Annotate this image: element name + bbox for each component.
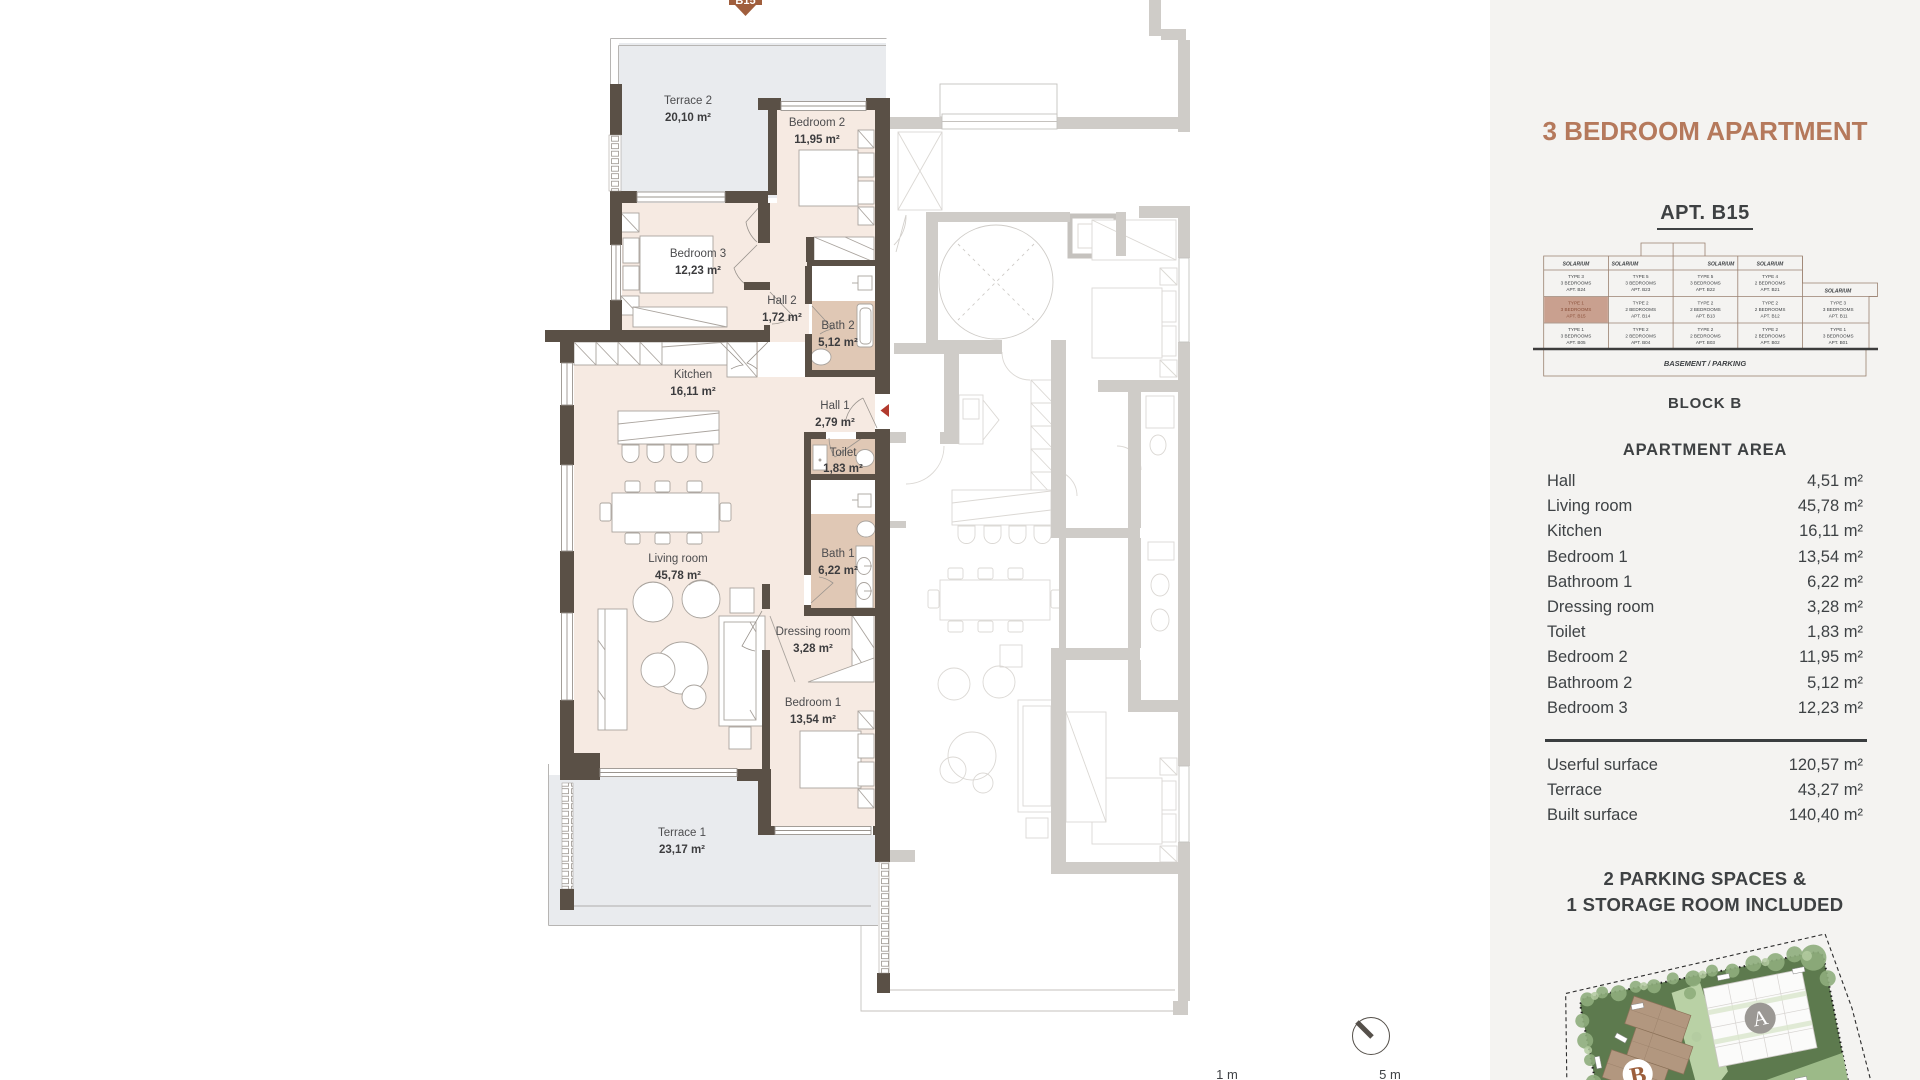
svg-text:5 m: 5 m	[1379, 1067, 1401, 1080]
svg-text:2 BEDROOMS: 2 BEDROOMS	[1755, 334, 1786, 339]
svg-text:TYPE 2: TYPE 2	[1633, 327, 1649, 332]
svg-text:Bath 1: Bath 1	[821, 548, 854, 560]
svg-text:2 BEDROOMS: 2 BEDROOMS	[1755, 307, 1786, 312]
svg-text:TYPE 2: TYPE 2	[1697, 301, 1713, 306]
svg-text:SOLARIUM: SOLARIUM	[1563, 262, 1591, 268]
svg-text:TYPE 3: TYPE 3	[1568, 274, 1584, 279]
svg-text:APT. B03: APT. B03	[1696, 340, 1716, 345]
svg-text:TYPE 2: TYPE 2	[1762, 301, 1778, 306]
svg-text:TYPE 2: TYPE 2	[1762, 327, 1778, 332]
svg-text:11,95 m²: 11,95 m²	[794, 134, 840, 146]
svg-text:3 BEDROOMS: 3 BEDROOMS	[1561, 307, 1592, 312]
svg-text:2 BEDROOMS: 2 BEDROOMS	[1625, 307, 1656, 312]
svg-text:TYPE 2: TYPE 2	[1697, 327, 1713, 332]
svg-text:20,10 m²: 20,10 m²	[665, 112, 711, 124]
svg-text:TYPE 1: TYPE 1	[1830, 327, 1846, 332]
svg-text:5,12 m²: 5,12 m²	[818, 337, 858, 349]
svg-text:3 BEDROOMS: 3 BEDROOMS	[1625, 281, 1656, 286]
svg-text:2 BEDROOMS: 2 BEDROOMS	[1690, 307, 1721, 312]
svg-text:23,17 m²: 23,17 m²	[659, 844, 705, 856]
svg-text:APT. B02: APT. B02	[1761, 340, 1781, 345]
svg-text:SOLARIUM: SOLARIUM	[1708, 262, 1736, 268]
svg-text:Bedroom 2: Bedroom 2	[789, 117, 845, 129]
svg-text:TYPE 5: TYPE 5	[1633, 274, 1649, 279]
svg-text:TYPE 1: TYPE 1	[1568, 327, 1584, 332]
svg-text:3 BEDROOMS: 3 BEDROOMS	[1823, 307, 1854, 312]
svg-text:APT. B24: APT. B24	[1566, 287, 1586, 292]
svg-text:APT. B22: APT. B22	[1696, 287, 1716, 292]
svg-text:TYPE 5: TYPE 5	[1697, 274, 1713, 279]
svg-text:1,72 m²: 1,72 m²	[762, 312, 802, 324]
svg-text:SOLARIUM: SOLARIUM	[1757, 262, 1785, 268]
svg-text:B15: B15	[735, 0, 755, 7]
svg-text:TYPE 4: TYPE 4	[1762, 274, 1778, 279]
svg-text:2 BEDROOMS: 2 BEDROOMS	[1625, 334, 1656, 339]
svg-text:2 BEDROOMS: 2 BEDROOMS	[1755, 281, 1786, 286]
svg-text:APT. B15: APT. B15	[1566, 314, 1586, 319]
svg-text:Kitchen: Kitchen	[674, 369, 712, 381]
svg-text:APT. B01: APT. B01	[1829, 340, 1849, 345]
svg-text:TYPE 1: TYPE 1	[1568, 301, 1584, 306]
svg-text:45,78 m²: 45,78 m²	[655, 570, 701, 582]
svg-text:Terrace 1: Terrace 1	[658, 827, 706, 839]
svg-text:3 BEDROOMS: 3 BEDROOMS	[1690, 281, 1721, 286]
svg-text:Hall 1: Hall 1	[820, 400, 849, 412]
svg-text:6,22 m²: 6,22 m²	[818, 565, 858, 577]
svg-text:13,54 m²: 13,54 m²	[790, 714, 836, 726]
svg-text:Bedroom 3: Bedroom 3	[670, 248, 726, 260]
svg-text:2,79 m²: 2,79 m²	[815, 417, 855, 429]
svg-text:2 BEDROOMS: 2 BEDROOMS	[1690, 334, 1721, 339]
svg-text:APT. B04: APT. B04	[1631, 340, 1651, 345]
svg-text:Dressing room: Dressing room	[776, 626, 851, 638]
svg-text:Bedroom 1: Bedroom 1	[785, 697, 841, 709]
svg-text:APT. B13: APT. B13	[1696, 314, 1716, 319]
svg-text:Terrace 2: Terrace 2	[664, 95, 712, 107]
svg-text:APT. B14: APT. B14	[1631, 314, 1651, 319]
svg-text:APT. B23: APT. B23	[1631, 287, 1651, 292]
svg-text:SOLARIUM: SOLARIUM	[1612, 262, 1640, 268]
svg-text:APT. B05: APT. B05	[1566, 340, 1586, 345]
svg-text:Bath 2: Bath 2	[821, 320, 854, 332]
svg-text:Living room: Living room	[648, 553, 707, 565]
svg-text:3 BEDROOMS: 3 BEDROOMS	[1561, 334, 1592, 339]
svg-text:3,28 m²: 3,28 m²	[793, 643, 833, 655]
svg-text:APT. B21: APT. B21	[1761, 287, 1781, 292]
svg-text:1,83 m²: 1,83 m²	[823, 463, 863, 475]
svg-text:SOLARIUM: SOLARIUM	[1825, 289, 1853, 295]
svg-text:Toilet: Toilet	[830, 447, 858, 459]
svg-text:BASEMENT / PARKING: BASEMENT / PARKING	[1664, 359, 1747, 368]
svg-text:16,11 m²: 16,11 m²	[670, 386, 716, 398]
svg-text:APT. B11: APT. B11	[1829, 314, 1848, 319]
svg-text:TYPE 3: TYPE 3	[1830, 301, 1846, 306]
svg-text:Hall 2: Hall 2	[767, 295, 796, 307]
svg-text:3 BEDROOMS: 3 BEDROOMS	[1561, 281, 1592, 286]
svg-text:1 m: 1 m	[1216, 1067, 1238, 1080]
svg-text:3 BEDROOMS: 3 BEDROOMS	[1823, 334, 1854, 339]
svg-text:12,23 m²: 12,23 m²	[675, 265, 721, 277]
svg-text:TYPE 2: TYPE 2	[1633, 301, 1649, 306]
svg-text:APT. B12: APT. B12	[1761, 314, 1781, 319]
